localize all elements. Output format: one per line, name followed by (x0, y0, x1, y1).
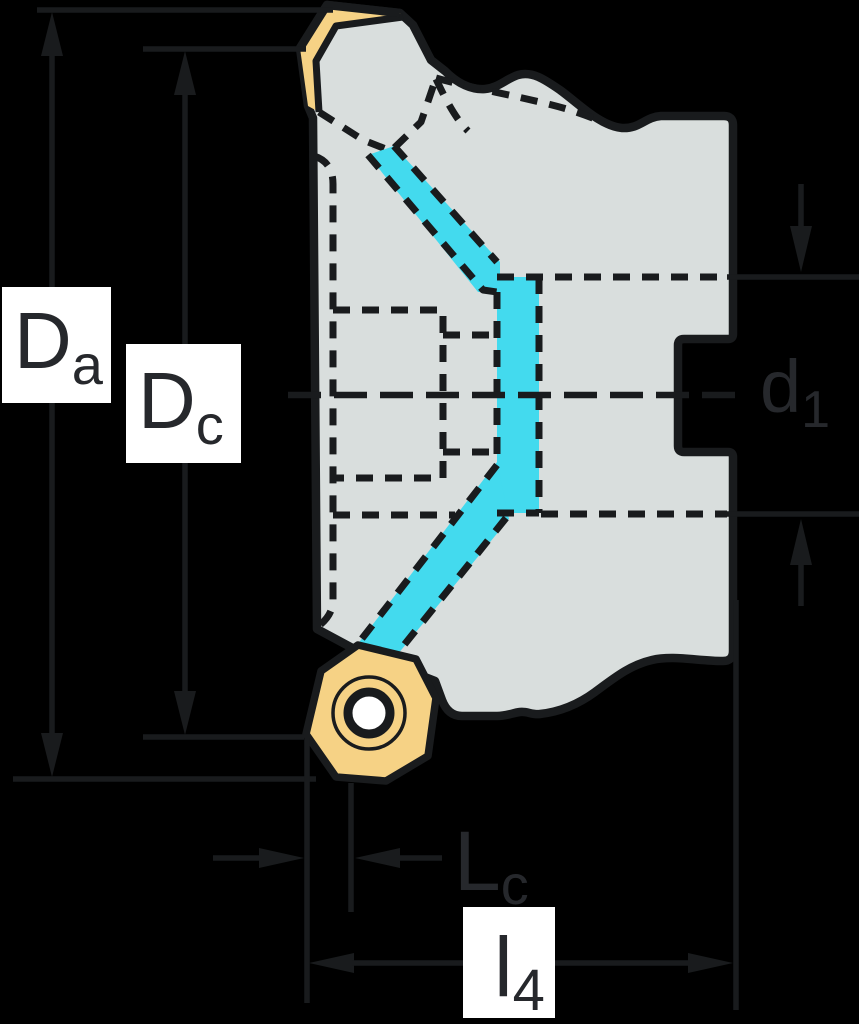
lc-label: Lc (454, 814, 529, 916)
lc-arrow-left (259, 848, 304, 868)
da-arrow-up (41, 12, 63, 56)
d1-arrow-top (790, 226, 812, 272)
dimension-d1: d1 (760, 184, 830, 606)
lc-arrow-right (355, 848, 400, 868)
da-arrow-down (41, 733, 63, 777)
d1-label: d1 (760, 345, 830, 439)
dc-arrow-up (174, 51, 196, 95)
insert-screw-hole (348, 692, 390, 734)
l4-arrow-left (309, 953, 354, 973)
dc-arrow-down (174, 691, 196, 735)
l4-arrow-right (688, 953, 733, 973)
cutter-drawing: Da Dc d1 Lc (0, 0, 859, 1024)
diagram-canvas: Da Dc d1 Lc (0, 0, 859, 1024)
dimension-dc: Dc (126, 49, 306, 737)
d1-arrow-bottom (790, 519, 812, 565)
